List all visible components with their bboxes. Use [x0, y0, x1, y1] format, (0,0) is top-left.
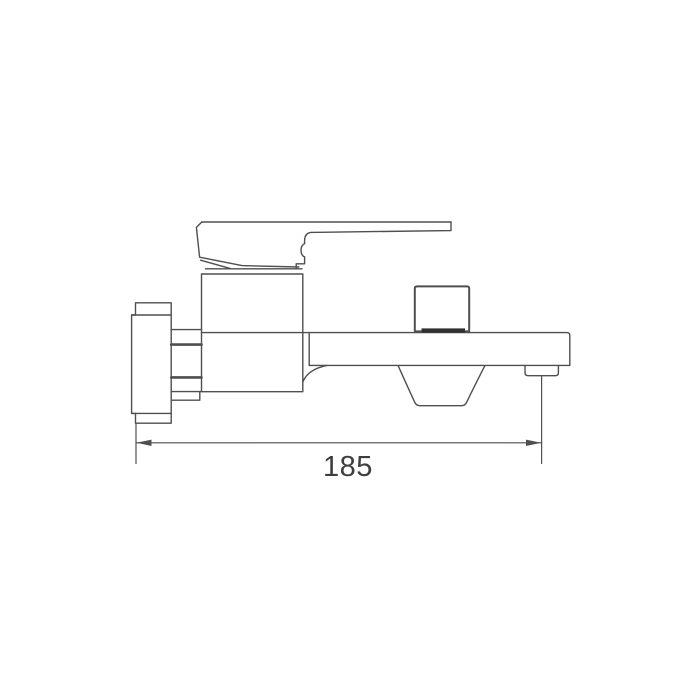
lever-tip-and-bottom-edge [305, 222, 451, 244]
connector-lower-lip [171, 392, 200, 401]
wall-flange [132, 303, 172, 423]
dimension-arrow-right-icon [526, 440, 541, 446]
diverter-knob-outline [415, 286, 469, 331]
underside-scoop [398, 366, 485, 406]
lever-handle [196, 222, 451, 269]
handle-cap-outline [196, 222, 298, 267]
dimension-arrow-left-icon [136, 440, 151, 446]
technical-drawing-canvas: 185 [0, 0, 700, 700]
spout-underside-fillet [303, 365, 327, 381]
diverter-knob [415, 286, 469, 332]
faucet-drawing-svg: 185 [0, 0, 700, 700]
spout-top-edge [202, 333, 570, 366]
dimension-label: 185 [323, 451, 373, 483]
wall-flange-outline [132, 303, 172, 423]
mounting-connector [171, 330, 201, 401]
aerator-outlet [525, 366, 558, 376]
diverter-knob-base-band [422, 328, 466, 332]
handle-cap-rim-line [201, 260, 231, 268]
handle-neck-curl [301, 244, 305, 257]
spout [202, 333, 570, 406]
